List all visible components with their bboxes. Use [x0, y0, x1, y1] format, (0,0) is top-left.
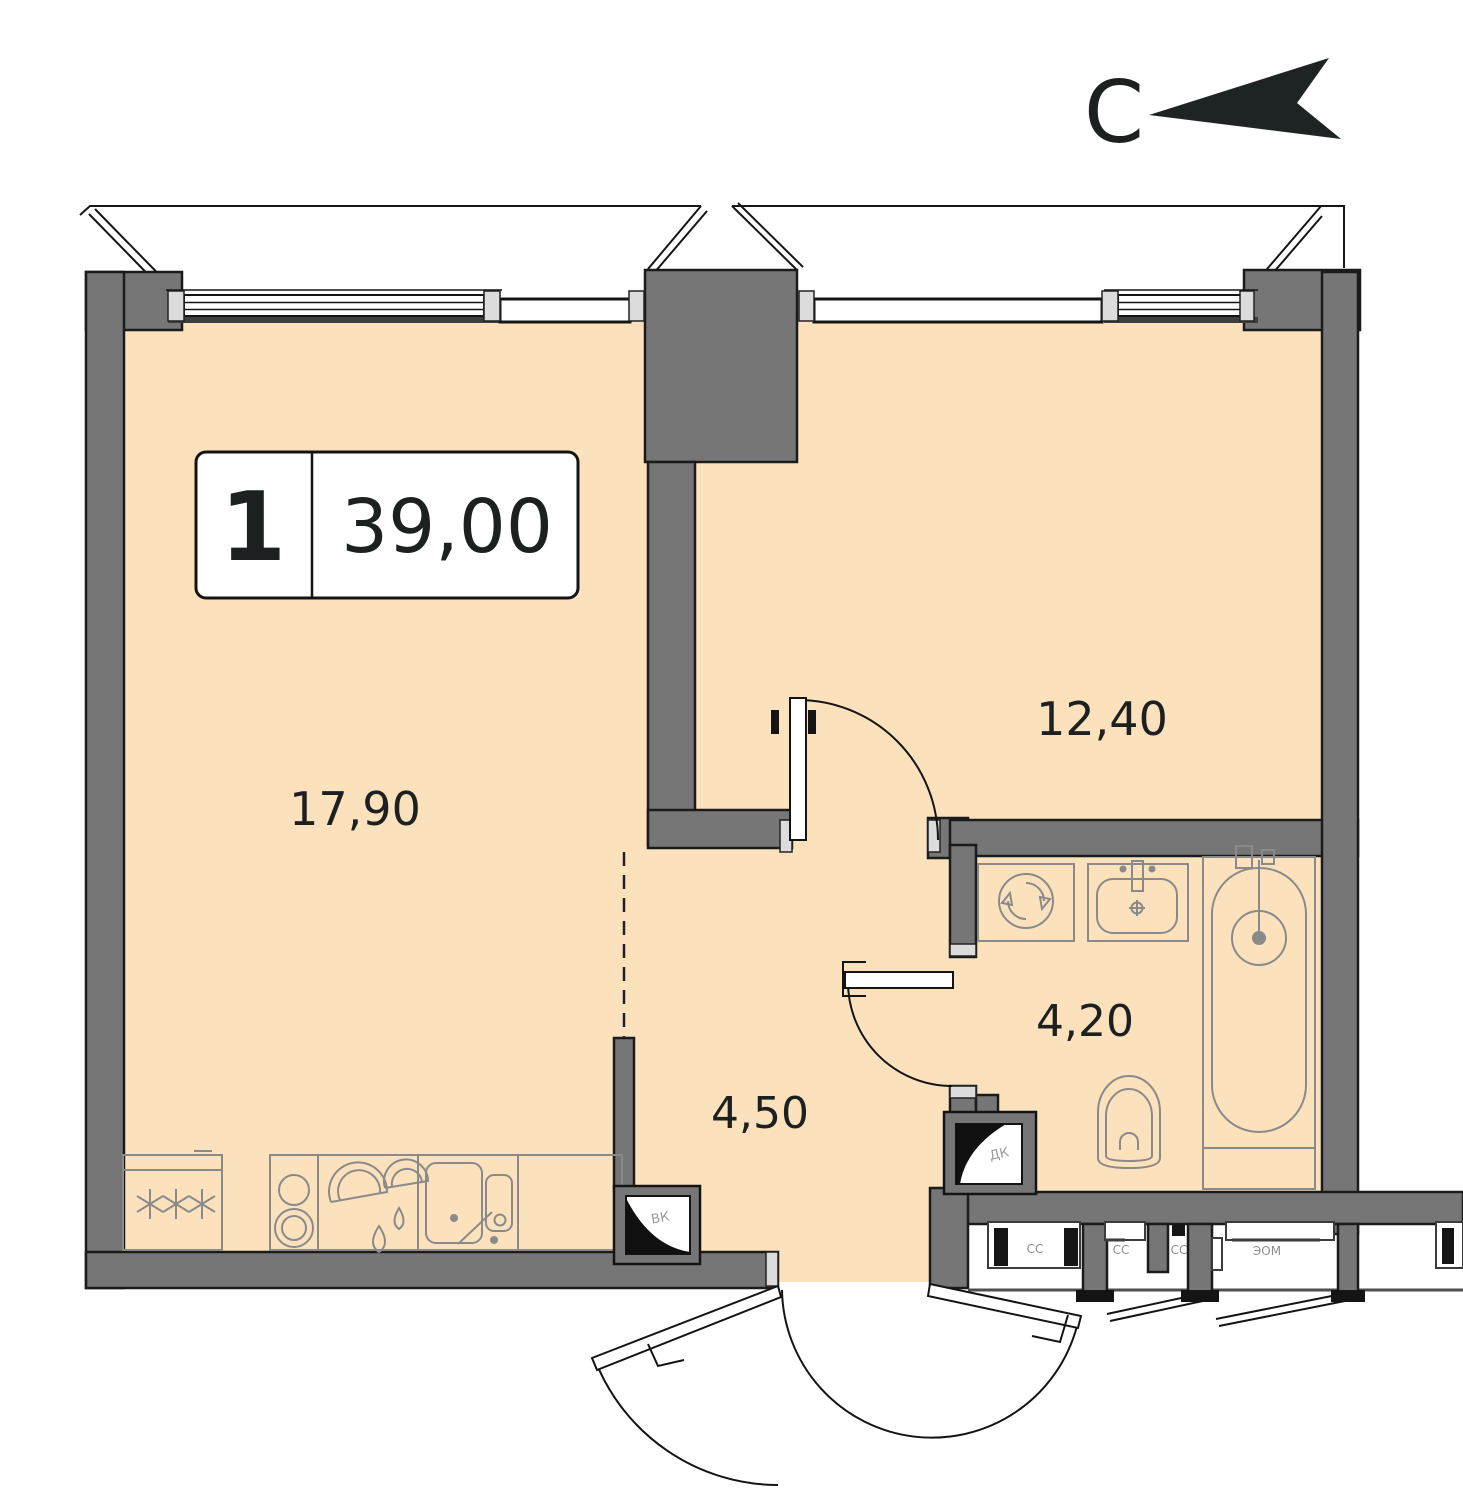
window-face-right	[1104, 317, 1258, 323]
corridor-niche-label: СС	[1171, 1243, 1188, 1257]
corridor-pier	[1148, 1224, 1168, 1272]
corridor-niche-label: СС	[1113, 1243, 1130, 1257]
door-jamb-cap	[766, 1252, 778, 1286]
wall-bathroom-bottom	[950, 1192, 1463, 1224]
door-leaf	[845, 972, 953, 988]
corridor-niche-4: ЭОМ	[1212, 1222, 1334, 1270]
corridor-niche-3: СС	[1171, 1224, 1188, 1257]
floor-plan-page: ВК ДК	[0, 0, 1463, 1500]
hallway-area-label: 4,50	[711, 1088, 809, 1139]
window-mullion-cap	[484, 291, 500, 321]
door-stop	[808, 710, 816, 734]
corridor-niche-5	[1436, 1222, 1463, 1268]
north-label: С	[1084, 63, 1144, 163]
window-mullion-cap	[1102, 291, 1118, 321]
corridor-pier	[1338, 1224, 1358, 1292]
corridor-pier-cap	[1076, 1290, 1114, 1302]
bedroom-area-label: 12,40	[1036, 692, 1168, 746]
window-mullion-cap	[799, 291, 814, 321]
north-arrow-icon	[1149, 58, 1341, 139]
window-mullion-cap	[629, 291, 644, 321]
door-jamb-cap	[950, 944, 976, 956]
facade-splay-pier-right	[732, 203, 803, 270]
entrance-threshold-floor	[778, 1252, 930, 1282]
corridor-pier	[1188, 1224, 1212, 1292]
wall-entrance-jamb-right	[930, 1188, 968, 1288]
corridor-niche-2: СС	[1105, 1222, 1145, 1257]
corridor-niche-1: СС	[988, 1222, 1080, 1268]
window-mullion-cap	[168, 291, 184, 321]
unit-card: 1 39,00	[196, 452, 578, 598]
corridor-pier	[1083, 1224, 1107, 1292]
unit-rooms-count: 1	[220, 473, 286, 583]
wall-hallway-stub	[614, 1038, 634, 1190]
wall-bathroom-top	[950, 820, 1358, 856]
door-leaf	[790, 698, 806, 840]
facade-line-top-left	[80, 206, 701, 215]
shaft-hallway-label: ВК	[650, 1210, 670, 1228]
door-swing-arc	[595, 1360, 778, 1485]
corridor-niche-label: СС	[1027, 1242, 1044, 1256]
window-face-left	[168, 317, 502, 323]
unit-total-area: 39,00	[341, 484, 553, 570]
bathroom-area-label: 4,20	[1036, 996, 1134, 1047]
floor-plan-drawing: ВК ДК	[0, 0, 1463, 1500]
shaft-hallway: ВК	[614, 1186, 700, 1264]
facade-line-top-right	[732, 206, 1344, 268]
window-living	[184, 295, 484, 316]
wall-bedroom-south	[648, 810, 792, 848]
living-room-area-label: 17,90	[289, 782, 421, 836]
door-leaf	[592, 1286, 781, 1370]
window-bedroom	[1118, 295, 1242, 316]
wall-exterior-right	[1322, 272, 1358, 1234]
facade-splay-pier-left	[648, 206, 707, 273]
shaft-bathroom: ДК	[944, 1112, 1036, 1194]
wall-exterior-left	[86, 272, 124, 1288]
wall-living-bedroom	[648, 462, 695, 845]
door-jamb-cap	[950, 1086, 976, 1098]
corridor-niche-label: ЭОМ	[1253, 1244, 1281, 1258]
door-stop	[771, 710, 779, 734]
window-panel-bedroom	[814, 299, 1102, 322]
wall-bathroom-left-upper	[950, 845, 976, 957]
neighbor-door	[592, 1286, 781, 1485]
north-indicator: С	[1084, 58, 1341, 163]
window-panel-living	[500, 299, 630, 322]
wall-pier-center	[645, 270, 797, 462]
window-mullion-cap	[1240, 291, 1254, 321]
